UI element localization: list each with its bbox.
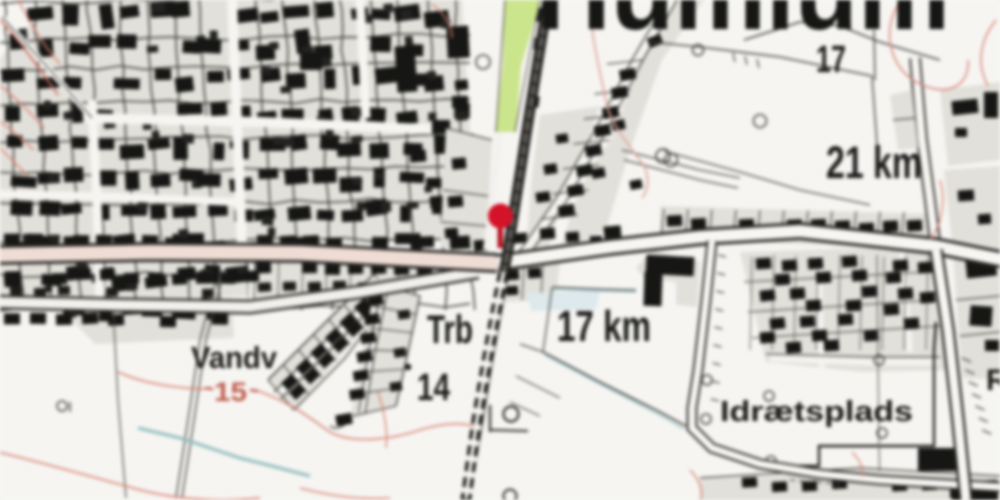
svg-text:Trb: Trb [427, 308, 473, 352]
svg-text:17: 17 [816, 39, 846, 81]
svg-text:14: 14 [417, 367, 450, 409]
svg-text:15: 15 [214, 377, 247, 407]
svg-text:Humlum: Humlum [536, 0, 950, 52]
svg-text:17 km: 17 km [557, 302, 651, 351]
svg-text:Idrætsplads: Idrætsplads [720, 396, 913, 428]
svg-text:21 km: 21 km [826, 137, 922, 188]
svg-text:R: R [986, 364, 1000, 397]
svg-text:Vandv: Vandv [191, 340, 278, 375]
